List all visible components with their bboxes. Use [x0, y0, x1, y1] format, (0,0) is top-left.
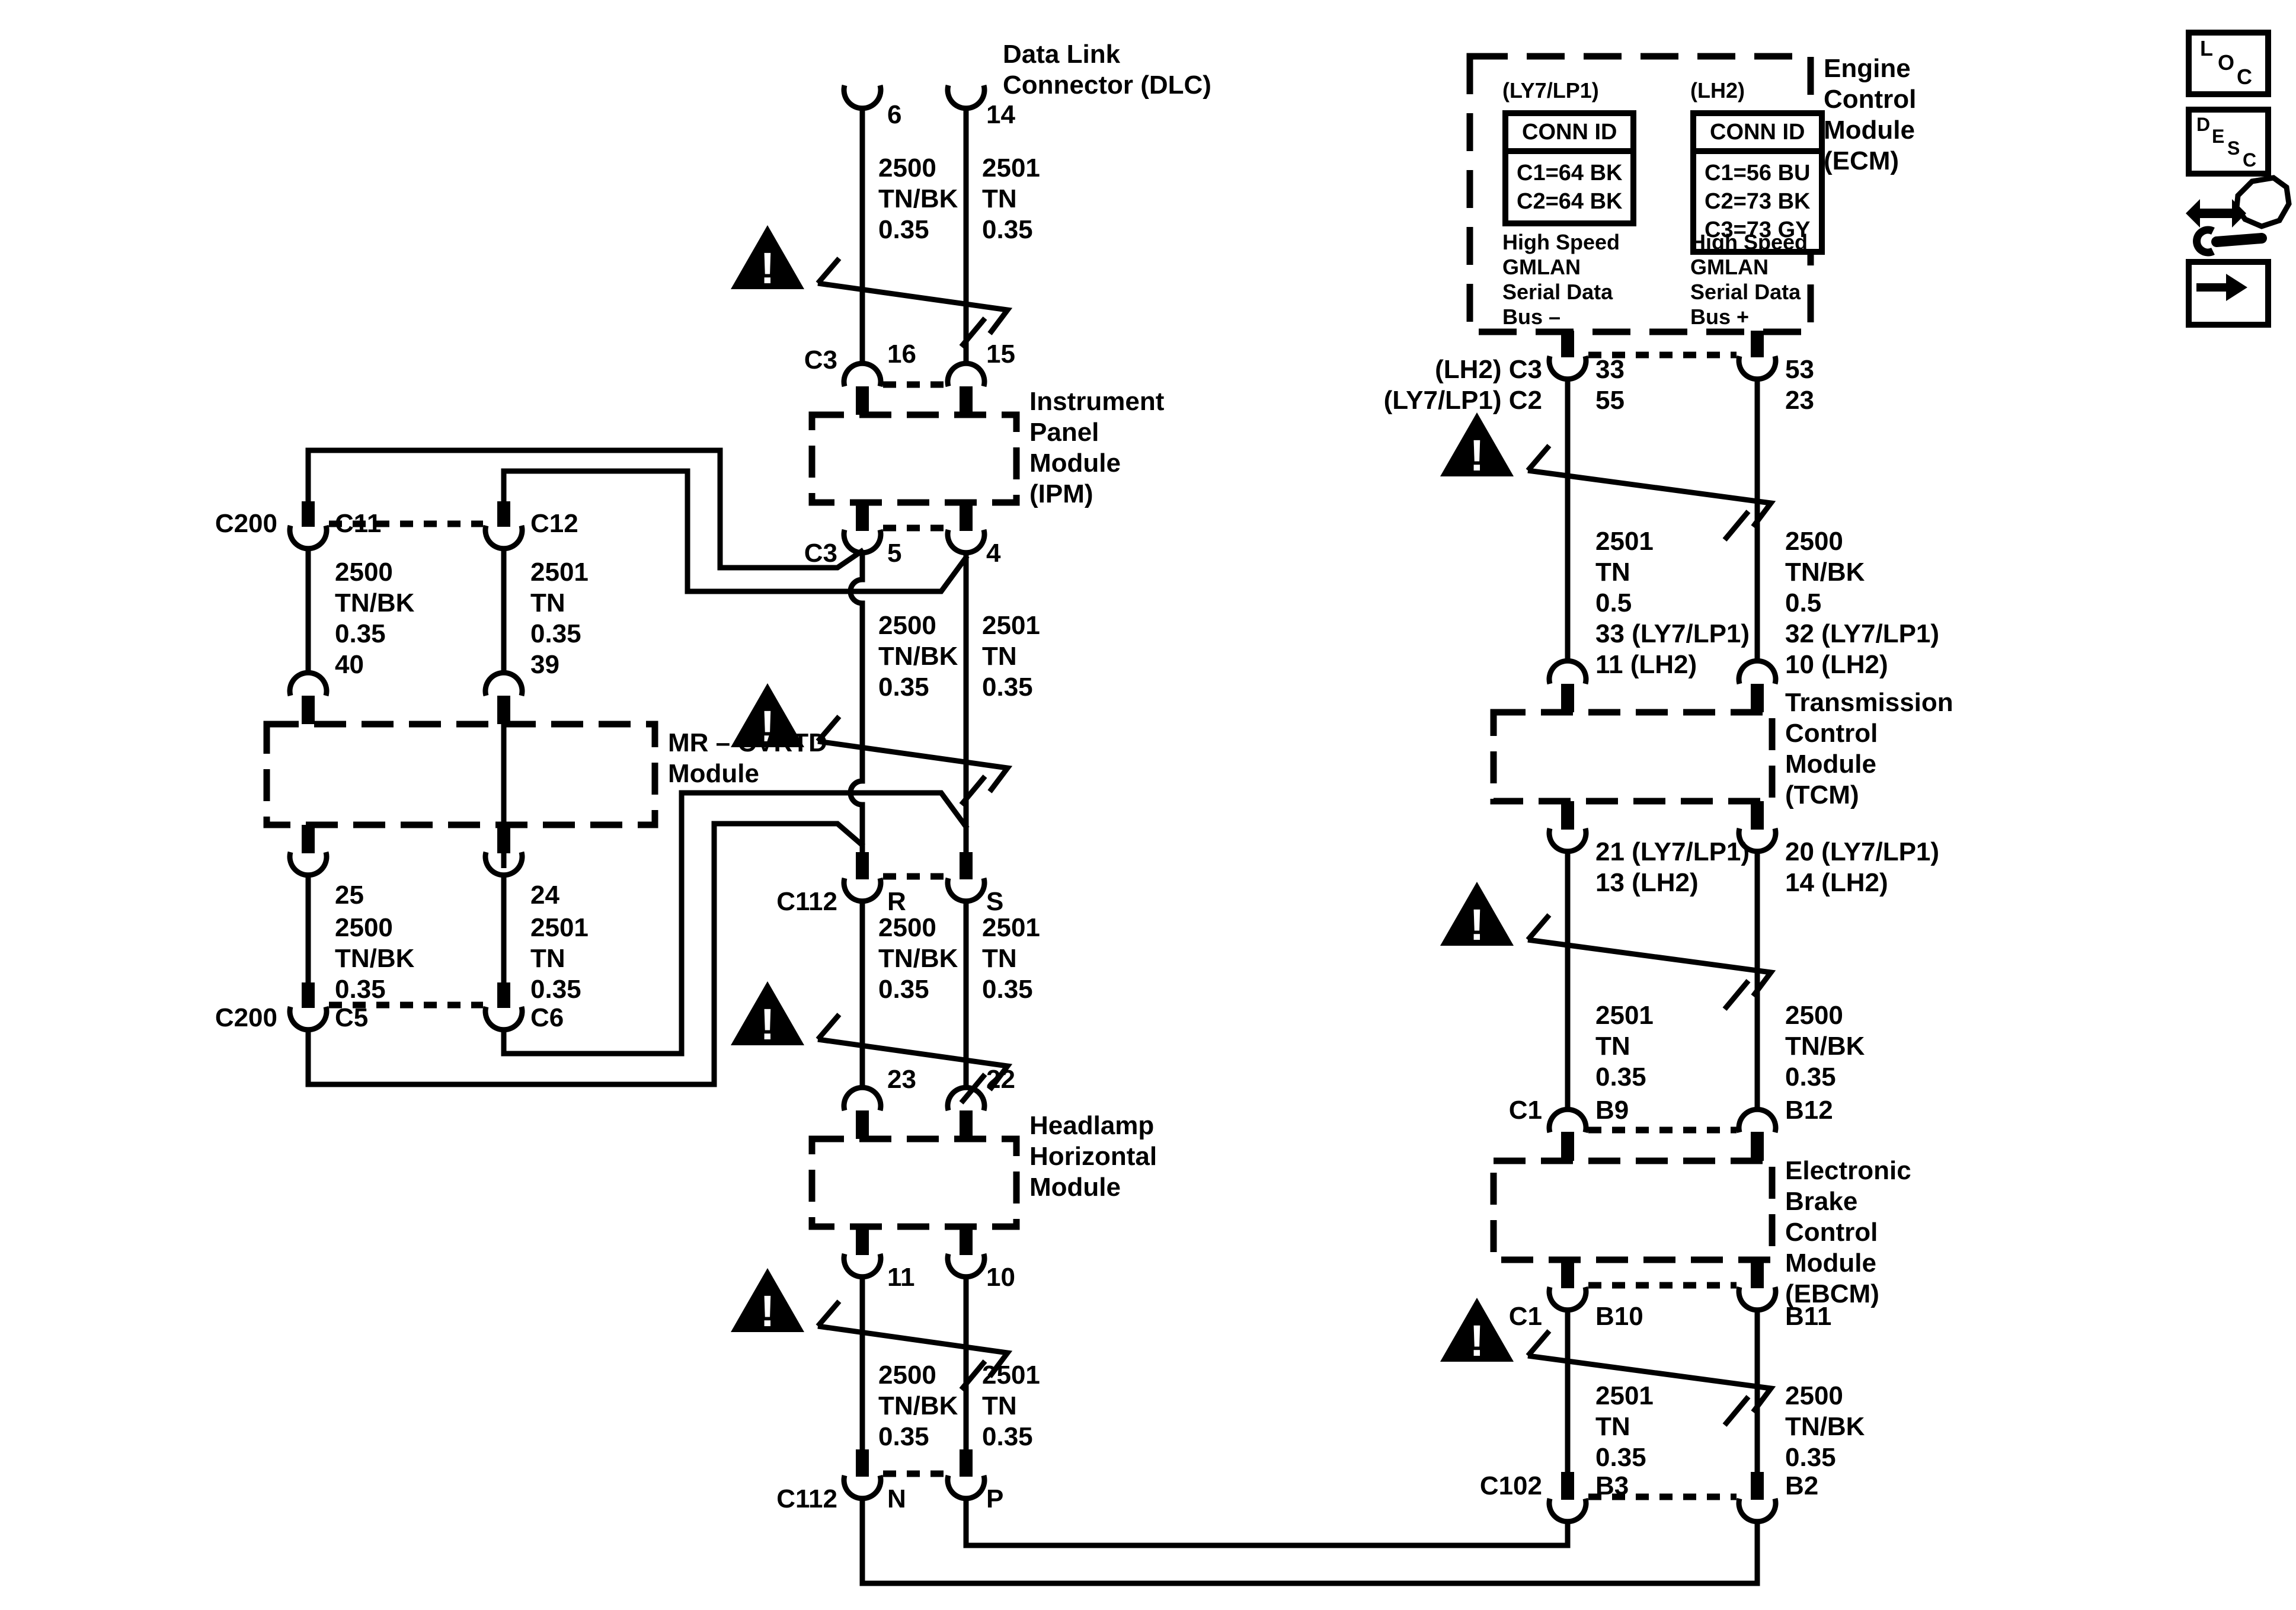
- pin-label: 14: [986, 100, 1015, 130]
- tcm-module-box: [1494, 712, 1772, 801]
- desc-letter: D: [2196, 114, 2210, 135]
- compare-connector-icon[interactable]: [2186, 178, 2289, 252]
- pin-label: 33: [1595, 354, 1625, 385]
- desc-letter: C: [2243, 149, 2256, 171]
- conn-id-header: CONN ID: [1508, 116, 1630, 154]
- pin-label: 5: [887, 538, 901, 569]
- dlc-title: Data Link Connector (DLC): [1003, 39, 1211, 101]
- pin-label: 53: [1785, 354, 1814, 385]
- pin-label: C11: [335, 508, 381, 539]
- warning-icon: !: [731, 1268, 804, 1336]
- wire-label-2501: 2501 TN 0.35: [982, 913, 1040, 1005]
- connector-label: (LY7/LP1) C2: [1364, 385, 1542, 416]
- pin-label: C6: [530, 1003, 564, 1033]
- mr-cvrtd-title: MR – CVRTD Module: [668, 728, 827, 789]
- wire-2501-p-to-b3: [966, 1497, 1568, 1545]
- pin-label: 23: [887, 1064, 916, 1095]
- pin-label: 21 (LY7/LP1): [1595, 837, 1750, 868]
- wire-label-2501: 2501 TN 0.5: [1595, 526, 1654, 619]
- desc-letter: E: [2212, 126, 2224, 147]
- pin-label: 11: [887, 1262, 915, 1293]
- wire-label-2500: 2500 TN/BK 0.35: [878, 610, 958, 703]
- connector-label: C3: [749, 538, 837, 569]
- pin-label: 4: [986, 538, 1000, 569]
- connector-outline-icon: [2237, 178, 2289, 226]
- ecm-variant-right: (LH2): [1690, 78, 1745, 103]
- pin-label: 33 (LY7/LP1): [1595, 619, 1750, 649]
- warning-icon: !: [1440, 412, 1514, 480]
- bus-minus-label: High Speed GMLAN Serial Data Bus –: [1502, 230, 1620, 329]
- ecm-variant-left: (LY7/LP1): [1502, 78, 1599, 103]
- connector-label: C1: [1424, 1301, 1542, 1332]
- pin-label: C12: [530, 508, 578, 539]
- pin-label: 24: [530, 880, 559, 911]
- pin-label: B2: [1785, 1471, 1818, 1502]
- wire-label-2501: 2501 TN 0.35: [1595, 1381, 1654, 1473]
- connector-label: (LH2) C3: [1364, 354, 1542, 385]
- pin-label: 16: [887, 339, 916, 370]
- connector-label: C200: [188, 508, 277, 539]
- loc-button[interactable]: L O C: [2186, 30, 2271, 97]
- connector-label: C112: [737, 886, 837, 917]
- connector-label: C102: [1424, 1471, 1542, 1502]
- pin-label: 23: [1785, 385, 1814, 416]
- wire-2500-ipm-to-c112: [850, 552, 862, 852]
- pin-label: 6: [887, 100, 901, 130]
- ecm-title: Engine Control Module (ECM): [1824, 53, 1916, 177]
- pin-label: 39: [530, 649, 559, 680]
- wire-label-2500: 2500 TN/BK 0.35: [335, 913, 414, 1005]
- wire-label-2501: 2501 TN 0.35: [1595, 1000, 1654, 1093]
- pin-label: 11 (LH2): [1595, 649, 1697, 680]
- wire-label-2500: 2500 TN/BK 0.35: [878, 1360, 958, 1452]
- svg-text:!: !: [1470, 431, 1485, 480]
- pin-label: C5: [335, 1003, 368, 1033]
- connector-label: C200: [188, 1003, 277, 1033]
- wrench-head-icon: [2197, 230, 2213, 252]
- pin-label: 20 (LY7/LP1): [1785, 837, 1939, 868]
- wire-label-2500: 2500 TN/BK 0.35: [335, 557, 414, 649]
- pin-label: B11: [1785, 1301, 1831, 1332]
- headlamp-module-box: [812, 1139, 1016, 1227]
- wire-label-2501: 2501 TN 0.35: [530, 557, 589, 649]
- pin-label: 25: [335, 880, 364, 911]
- pin-label: 15: [986, 339, 1015, 370]
- wire-label-2501: 2501 TN 0.35: [982, 610, 1040, 703]
- wire-label-2500: 2500 TN/BK 0.35: [878, 913, 958, 1005]
- connector-label: C1: [1424, 1095, 1542, 1126]
- conn-id-rows: C1=64 BK C2=64 BK: [1508, 154, 1630, 220]
- pin-label: 13 (LH2): [1595, 868, 1699, 898]
- pin-label: P: [986, 1484, 1003, 1515]
- loc-letter: O: [2218, 52, 2234, 73]
- ipm-module-box: [812, 415, 1016, 502]
- loc-letter: L: [2200, 38, 2213, 59]
- pin-label: B12: [1785, 1095, 1833, 1126]
- wire-label-2501: 2501 TN 0.35: [982, 1360, 1040, 1452]
- warning-icon: !: [1440, 882, 1514, 949]
- connector-label: C112: [737, 1484, 837, 1515]
- tcm-title: Transmission Control Module (TCM): [1785, 687, 1953, 811]
- desc-letter: S: [2227, 137, 2240, 159]
- svg-text:!: !: [760, 1000, 775, 1049]
- pin-label: 40: [335, 649, 364, 680]
- pin-label: 10 (LH2): [1785, 649, 1888, 680]
- desc-button[interactable]: D E S C: [2186, 107, 2271, 177]
- warning-icon: !: [731, 981, 804, 1049]
- pin-label: 55: [1595, 385, 1625, 416]
- pin-label: N: [887, 1484, 906, 1515]
- mr-cvrtd-module-box: [267, 724, 655, 825]
- pin-label: B3: [1595, 1471, 1629, 1502]
- pin-label: B9: [1595, 1095, 1629, 1126]
- svg-text:!: !: [1470, 900, 1485, 949]
- wrench-handle-icon: [2217, 238, 2262, 242]
- svg-text:!: !: [760, 1286, 775, 1336]
- ipm-title: Instrument Panel Module (IPM): [1029, 386, 1164, 510]
- wire-label-2501: 2501 TN 0.35: [530, 913, 589, 1005]
- ebcm-module-box: [1494, 1161, 1772, 1260]
- wiring-diagram-page: ! ! ! ! ! ! ! Data Link Connector (DLC) …: [0, 0, 2296, 1610]
- wire-label-2500: 2500 TN/BK 0.35: [1785, 1000, 1865, 1093]
- wire-label-2500: 2500 TN/BK 0.5: [1785, 526, 1865, 619]
- headlamp-title: Headlamp Horizontal Module: [1029, 1110, 1157, 1203]
- warning-icon: !: [731, 225, 804, 293]
- loc-letter: C: [2237, 66, 2252, 88]
- connector-label: C3: [749, 345, 837, 376]
- bus-plus-label: High Speed GMLAN Serial Data Bus +: [1690, 230, 1808, 329]
- conn-id-header: CONN ID: [1696, 116, 1819, 154]
- pin-label: 10: [986, 1262, 1015, 1293]
- wire-label-2500: 2500 TN/BK 0.35: [1785, 1381, 1865, 1473]
- next-button[interactable]: [2186, 259, 2271, 328]
- pin-label: 22: [986, 1064, 1015, 1095]
- pin-label: B10: [1595, 1301, 1643, 1332]
- ebcm-title: Electronic Brake Control Module (EBCM): [1785, 1156, 1911, 1310]
- wire-label-2500: 2500 TN/BK 0.35: [878, 153, 958, 245]
- wire-label-2501: 2501 TN 0.35: [982, 153, 1040, 245]
- conn-id-table-ly7: CONN ID C1=64 BK C2=64 BK: [1502, 110, 1636, 226]
- svg-text:!: !: [760, 244, 775, 293]
- pin-label: 32 (LY7/LP1): [1785, 619, 1939, 649]
- pin-label: 14 (LH2): [1785, 868, 1888, 898]
